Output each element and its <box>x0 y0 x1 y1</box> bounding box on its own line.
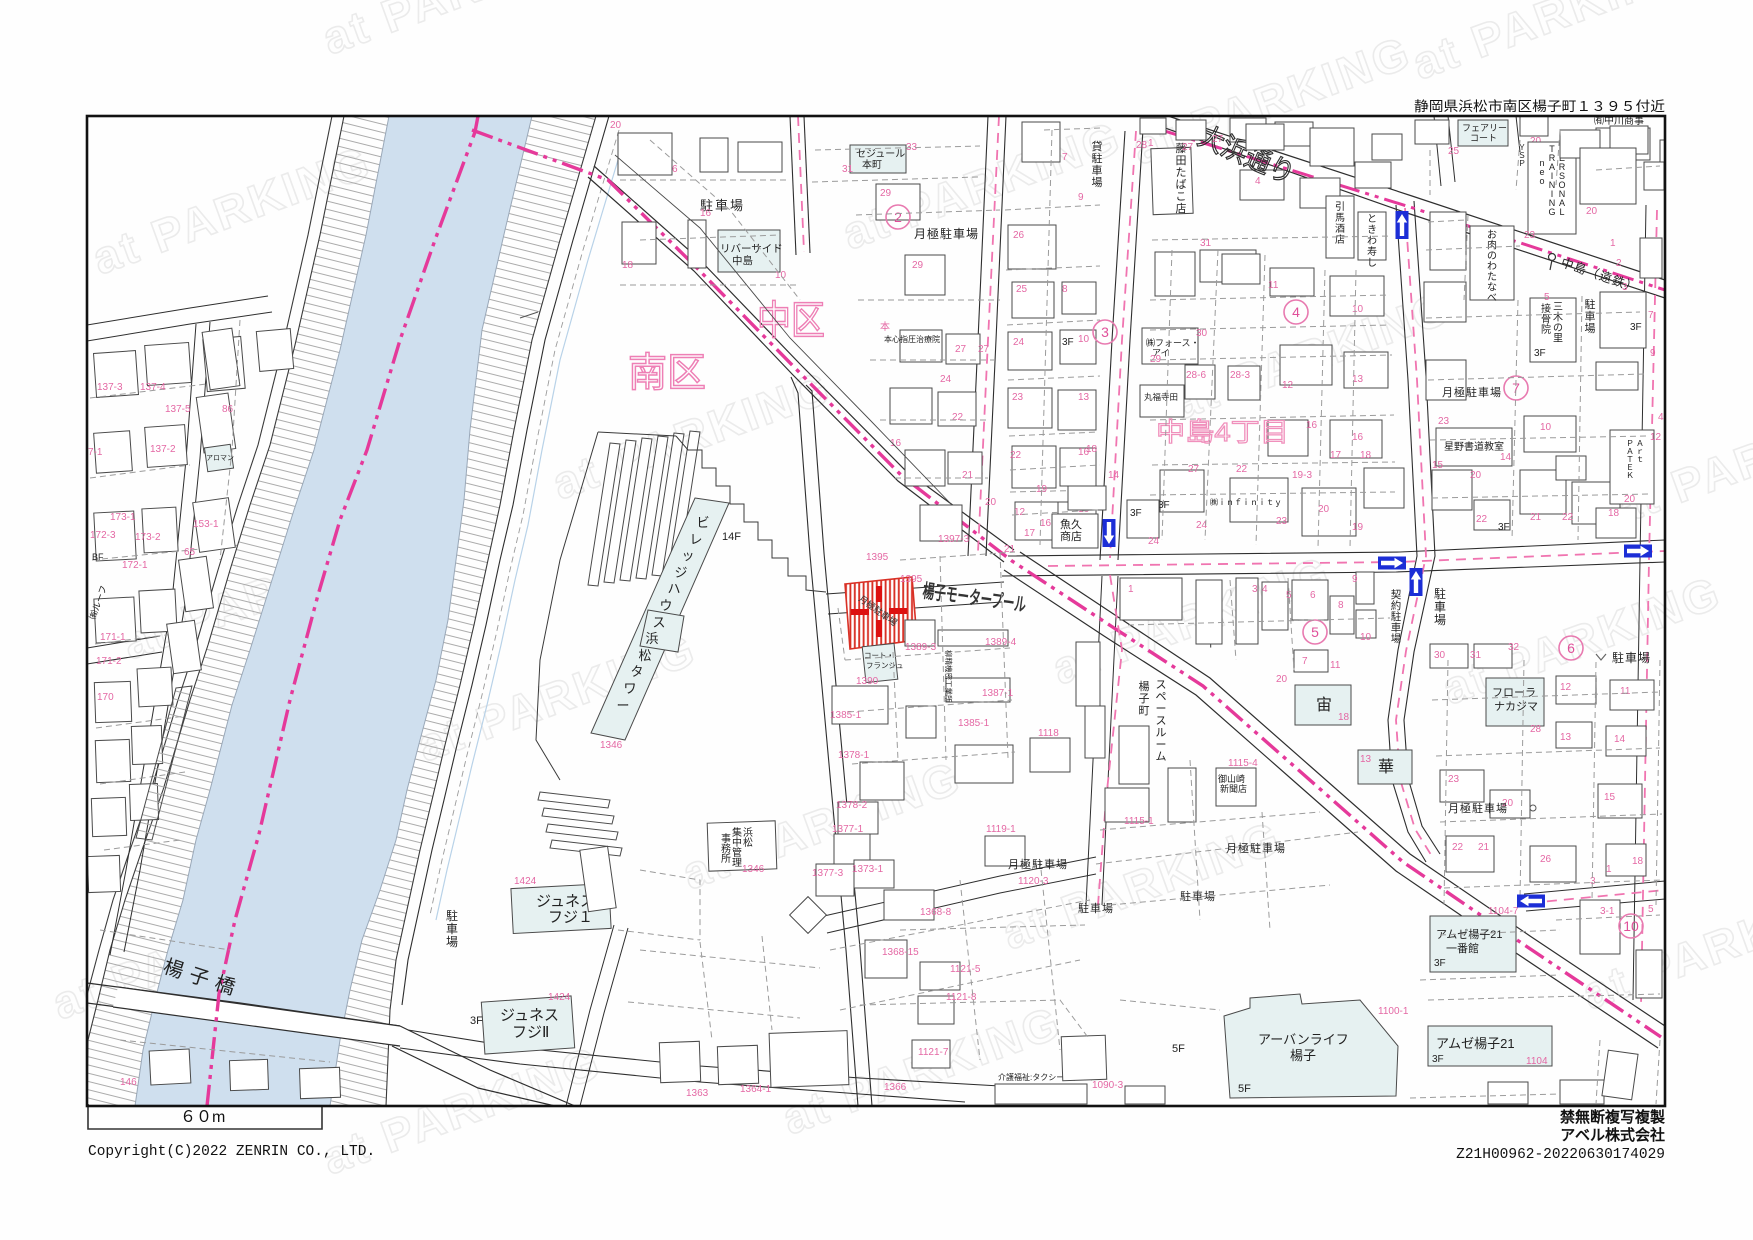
svg-text:23: 23 <box>1524 230 1536 241</box>
svg-text:20: 20 <box>1586 206 1598 217</box>
svg-text:137-5: 137-5 <box>165 404 191 415</box>
svg-text:商店: 商店 <box>1060 529 1082 543</box>
svg-text:24: 24 <box>940 374 952 385</box>
svg-text:4: 4 <box>1262 584 1268 595</box>
svg-text:1121-7: 1121-7 <box>918 1047 949 1058</box>
svg-text:引馬酒店: 引馬酒店 <box>1335 201 1345 246</box>
svg-text:3-1: 3-1 <box>1600 906 1615 917</box>
svg-text:1389-4: 1389-4 <box>985 637 1017 648</box>
svg-text:28-3: 28-3 <box>1230 370 1250 381</box>
svg-text:16: 16 <box>1306 420 1318 431</box>
svg-text:アムゼ楊子21: アムゼ楊子21 <box>1436 1036 1515 1051</box>
svg-text:6: 6 <box>1310 590 1316 601</box>
svg-text:3F: 3F <box>1534 348 1546 359</box>
svg-text:28-6: 28-6 <box>1186 370 1206 381</box>
svg-text:1368-15: 1368-15 <box>882 947 919 958</box>
svg-text:18: 18 <box>622 260 634 271</box>
svg-text:1385-1: 1385-1 <box>830 710 862 721</box>
svg-text:26: 26 <box>1013 230 1025 241</box>
svg-text:貸駐車場: 貸駐車場 <box>1092 139 1103 189</box>
svg-text:27: 27 <box>1182 142 1194 153</box>
svg-text:1121-5: 1121-5 <box>950 964 981 975</box>
svg-text:アムゼ楊子21: アムゼ楊子21 <box>1436 927 1502 941</box>
svg-text:173-1: 173-1 <box>110 512 136 523</box>
svg-text:16: 16 <box>1040 518 1052 529</box>
svg-text:22: 22 <box>1010 450 1022 461</box>
svg-text:Ａｒｔ: Ａｒｔ <box>1636 439 1644 464</box>
svg-text:5F: 5F <box>1172 1043 1185 1055</box>
svg-text:1387-1: 1387-1 <box>982 688 1014 699</box>
svg-text:3F: 3F <box>1158 500 1170 511</box>
svg-text:9: 9 <box>1650 348 1656 359</box>
svg-text:3: 3 <box>1590 876 1596 887</box>
svg-text:22: 22 <box>1562 512 1574 523</box>
svg-text:禁無断複写複製: 禁無断複写複製 <box>1560 1108 1665 1126</box>
svg-text:137-4: 137-4 <box>140 382 166 393</box>
svg-text:1395: 1395 <box>866 552 889 563</box>
svg-text:14F: 14F <box>722 531 741 543</box>
svg-text:2: 2 <box>894 209 902 225</box>
svg-text:25: 25 <box>1016 284 1028 295</box>
svg-text:14: 14 <box>1614 734 1626 745</box>
svg-text:4: 4 <box>1292 304 1300 320</box>
svg-text:1363: 1363 <box>686 1088 709 1099</box>
svg-text:駐車場: 駐車場 <box>1612 650 1651 665</box>
svg-text:20: 20 <box>610 120 622 131</box>
svg-text:宙: 宙 <box>1316 696 1332 714</box>
svg-text:8: 8 <box>1062 284 1068 295</box>
svg-text:5: 5 <box>1544 292 1550 303</box>
svg-text:本心指圧治療院: 本心指圧治療院 <box>884 334 940 344</box>
svg-text:セジュール: セジュール <box>856 148 905 160</box>
svg-text:1390: 1390 <box>856 676 879 687</box>
svg-text:9: 9 <box>1078 192 1084 203</box>
svg-text:御山崎: 御山崎 <box>1218 773 1245 784</box>
svg-text:1424: 1424 <box>548 992 571 1003</box>
svg-text:ときわ寿し: ときわ寿し <box>1367 213 1377 269</box>
svg-text:6: 6 <box>672 164 678 175</box>
svg-text:スペースルーム: スペースルーム <box>1156 679 1167 763</box>
svg-text:1385-1: 1385-1 <box>958 718 990 729</box>
svg-text:TRAINING: TRAINING <box>1548 144 1555 217</box>
svg-text:月極駐車場: 月極駐車場 <box>1008 857 1068 871</box>
svg-text:1373-1: 1373-1 <box>852 864 884 875</box>
svg-text:お肉のわたなべ: お肉のわたなべ <box>1487 229 1497 304</box>
svg-text:魚久: 魚久 <box>1060 518 1082 531</box>
svg-text:1: 1 <box>1610 238 1616 249</box>
svg-text:22: 22 <box>1452 842 1464 853</box>
svg-text:11: 11 <box>1330 660 1341 671</box>
svg-text:2: 2 <box>1616 258 1622 269</box>
svg-text:23: 23 <box>1276 516 1288 527</box>
svg-text:24: 24 <box>1013 337 1025 348</box>
svg-text:1115-1: 1115-1 <box>1124 816 1154 827</box>
svg-text:丸福寺田: 丸福寺田 <box>1144 392 1178 402</box>
svg-text:20: 20 <box>1318 504 1330 515</box>
svg-text:28: 28 <box>1136 140 1148 151</box>
svg-text:23: 23 <box>1012 392 1024 403</box>
svg-text:31: 31 <box>842 164 854 175</box>
svg-text:1366: 1366 <box>884 1082 907 1093</box>
svg-text:23: 23 <box>1448 774 1460 785</box>
svg-text:26: 26 <box>1540 854 1552 865</box>
svg-text:一番館: 一番館 <box>1446 941 1479 955</box>
svg-text:19-3: 19-3 <box>1292 470 1312 481</box>
svg-text:1: 1 <box>1148 138 1154 149</box>
svg-text:1377-3: 1377-3 <box>812 868 844 879</box>
svg-text:171-2: 171-2 <box>96 656 122 667</box>
svg-text:22: 22 <box>952 412 964 423</box>
svg-text:1104: 1104 <box>1526 1056 1548 1067</box>
svg-text:16: 16 <box>700 208 712 219</box>
svg-text:駐車場: 駐車場 <box>446 908 458 949</box>
svg-text:10: 10 <box>1623 918 1639 934</box>
svg-text:31: 31 <box>1470 650 1482 661</box>
svg-text:1395: 1395 <box>900 574 923 585</box>
svg-text:3: 3 <box>1622 282 1628 293</box>
svg-text:9: 9 <box>1352 574 1358 585</box>
svg-text:27: 27 <box>1212 134 1224 145</box>
svg-text:中区: 中区 <box>757 299 825 343</box>
svg-text:170: 170 <box>97 692 114 703</box>
svg-text:集中管理: 集中管理 <box>732 826 742 869</box>
svg-text:南区: 南区 <box>628 351 706 395</box>
svg-text:3F: 3F <box>1130 508 1142 519</box>
svg-text:18: 18 <box>1632 856 1644 867</box>
svg-text:1346: 1346 <box>600 740 623 751</box>
svg-text:7: 7 <box>1062 152 1068 163</box>
svg-text:173-2: 173-2 <box>135 532 161 543</box>
svg-text:アベル株式会社: アベル株式会社 <box>1560 1126 1665 1144</box>
svg-text:172-1: 172-1 <box>122 560 148 571</box>
svg-text:12: 12 <box>1560 682 1572 693</box>
svg-text:21: 21 <box>1530 512 1542 523</box>
svg-text:7: 7 <box>1648 310 1654 321</box>
svg-text:コート: コート <box>1470 133 1497 143</box>
svg-text:1100-1: 1100-1 <box>1378 1006 1409 1017</box>
svg-text:1104-7: 1104-7 <box>1488 906 1519 917</box>
svg-text:1378-2: 1378-2 <box>836 800 868 811</box>
svg-text:5F: 5F <box>1238 1083 1251 1095</box>
svg-text:フェアリー: フェアリー <box>1462 123 1507 133</box>
svg-text:駐車場: 駐車場 <box>1585 297 1596 335</box>
svg-text:柳精機密工業所: 柳精機密工業所 <box>944 650 954 703</box>
svg-text:20: 20 <box>1470 470 1482 481</box>
svg-text:1389-3: 1389-3 <box>905 642 937 653</box>
svg-text:1120-3: 1120-3 <box>1018 876 1049 887</box>
svg-text:3F: 3F <box>470 1015 483 1027</box>
svg-text:Copyright(C)2022 ZENRIN CO., L: Copyright(C)2022 ZENRIN CO., LTD. <box>88 1144 375 1160</box>
svg-text:3F: 3F <box>1630 322 1642 333</box>
svg-text:本町: 本町 <box>862 158 882 171</box>
svg-text:ナカジマ: ナカジマ <box>1494 700 1538 713</box>
svg-text:3F: 3F <box>1432 1054 1444 1065</box>
svg-text:1364-1: 1364-1 <box>740 1084 772 1095</box>
svg-text:17: 17 <box>1330 450 1342 461</box>
svg-text:7: 7 <box>1302 656 1308 667</box>
svg-text:146: 146 <box>120 1077 137 1088</box>
svg-text:10: 10 <box>775 270 787 281</box>
svg-text:10: 10 <box>1078 334 1090 345</box>
svg-text:10: 10 <box>1540 422 1552 433</box>
svg-text:27: 27 <box>955 344 967 355</box>
svg-text:三木の里: 三木の里 <box>1553 302 1563 345</box>
svg-text:10: 10 <box>1360 632 1372 643</box>
svg-text:静岡県浜松市南区楊子町１３９５付近: 静岡県浜松市南区楊子町１３９５付近 <box>1414 98 1666 114</box>
svg-text:3: 3 <box>1252 584 1258 595</box>
svg-text:neo: neo <box>1539 158 1544 186</box>
svg-text:6: 6 <box>1567 640 1575 656</box>
svg-text:18: 18 <box>1086 444 1098 455</box>
svg-text:リバーサイド: リバーサイド <box>720 243 783 255</box>
svg-text:フジ１: フジ１ <box>548 909 593 926</box>
svg-text:7-1: 7-1 <box>88 447 103 458</box>
svg-text:13: 13 <box>1360 754 1372 765</box>
svg-text:23: 23 <box>1438 416 1450 427</box>
svg-text:㈱フォース・: ㈱フォース・ <box>1146 337 1200 348</box>
svg-text:契約駐車場: 契約駐車場 <box>1391 588 1402 645</box>
svg-text:接骨院: 接骨院 <box>1541 302 1551 336</box>
svg-text:19: 19 <box>1036 484 1048 495</box>
svg-text:㈱ｉｎｆｉｎｉｔｙ: ㈱ｉｎｆｉｎｉｔｙ <box>1210 497 1282 507</box>
svg-text:中島: 中島 <box>732 254 753 267</box>
svg-text:32: 32 <box>1508 642 1520 653</box>
svg-text:６０m: ６０m <box>180 1109 225 1126</box>
svg-text:駐車場: 駐車場 <box>1078 901 1114 915</box>
svg-text:27: 27 <box>1188 464 1200 475</box>
svg-text:1346: 1346 <box>742 864 765 875</box>
svg-text:12: 12 <box>1282 380 1294 391</box>
svg-text:1397-3: 1397-3 <box>938 534 970 545</box>
svg-text:22: 22 <box>1476 514 1488 525</box>
svg-text:24: 24 <box>1148 536 1160 547</box>
svg-text:18: 18 <box>1608 508 1620 519</box>
svg-text:137-2: 137-2 <box>150 444 176 455</box>
svg-text:1: 1 <box>1606 864 1612 875</box>
svg-text:13: 13 <box>1560 732 1572 743</box>
svg-text:20: 20 <box>1624 494 1636 505</box>
svg-text:153-1: 153-1 <box>193 519 219 530</box>
svg-text:29: 29 <box>912 260 924 271</box>
svg-text:21: 21 <box>1478 842 1490 853</box>
svg-text:ジュネス: ジュネス <box>500 1007 559 1024</box>
svg-text:16: 16 <box>1352 432 1364 443</box>
svg-text:5: 5 <box>1648 904 1654 915</box>
svg-text:フランシュ: フランシュ <box>866 661 904 670</box>
svg-text:15: 15 <box>1432 460 1444 471</box>
svg-text:1119-1: 1119-1 <box>986 824 1016 835</box>
svg-text:Z21H00962-20220630174029: Z21H00962-20220630174029 <box>1456 1147 1665 1163</box>
svg-text:本: 本 <box>880 320 890 333</box>
svg-text:ＰＡＴＥＫ: ＰＡＴＥＫ <box>1626 439 1634 480</box>
svg-text:3F: 3F <box>1498 522 1510 533</box>
svg-text:172-3: 172-3 <box>90 530 116 541</box>
svg-text:15: 15 <box>1604 792 1616 803</box>
svg-text:21: 21 <box>1004 544 1016 555</box>
svg-text:フジⅡ: フジⅡ <box>512 1024 549 1041</box>
svg-text:21: 21 <box>962 470 974 481</box>
svg-text:月極駐車場: 月極駐車場 <box>1442 385 1502 399</box>
svg-text:30: 30 <box>1196 328 1208 339</box>
svg-text:1368-8: 1368-8 <box>920 907 952 918</box>
svg-text:14: 14 <box>1500 452 1512 463</box>
svg-text:28: 28 <box>1530 724 1542 735</box>
svg-text:14: 14 <box>1108 470 1120 481</box>
svg-text:18: 18 <box>1338 712 1350 723</box>
svg-text:65: 65 <box>184 547 196 558</box>
svg-text:月極駐車場: 月極駐車場 <box>1226 841 1286 855</box>
svg-text:1378-1: 1378-1 <box>838 750 870 761</box>
svg-text:29: 29 <box>880 188 892 199</box>
svg-text:星野書道教室: 星野書道教室 <box>1444 440 1504 453</box>
svg-text:5: 5 <box>1311 624 1319 640</box>
svg-text:11: 11 <box>1620 686 1631 697</box>
svg-text:BF: BF <box>92 552 104 562</box>
svg-text:171-1: 171-1 <box>100 632 126 643</box>
svg-text:12: 12 <box>1014 507 1026 518</box>
svg-text:86: 86 <box>222 404 234 415</box>
svg-text:8: 8 <box>1338 600 1344 611</box>
svg-text:華: 華 <box>1378 758 1394 776</box>
svg-text:楊子町: 楊子町 <box>1139 679 1150 717</box>
svg-text:31: 31 <box>1200 238 1212 249</box>
svg-text:1424: 1424 <box>514 876 537 887</box>
svg-text:18: 18 <box>1360 450 1372 461</box>
svg-text:1115-4: 1115-4 <box>1228 758 1258 769</box>
svg-text:3F: 3F <box>1062 337 1074 348</box>
svg-text:11: 11 <box>1268 280 1279 291</box>
svg-text:20: 20 <box>985 497 997 508</box>
svg-text:25: 25 <box>1448 146 1460 157</box>
svg-text:22: 22 <box>1236 464 1248 475</box>
svg-text:月極駐車場: 月極駐車場 <box>1448 801 1508 815</box>
svg-text:1: 1 <box>1128 584 1134 595</box>
svg-text:17: 17 <box>1024 528 1036 539</box>
svg-text:19: 19 <box>1352 522 1364 533</box>
svg-text:13: 13 <box>1078 392 1090 403</box>
svg-text:月極駐車場: 月極駐車場 <box>914 226 979 241</box>
svg-text:アロマン: アロマン <box>206 454 234 462</box>
svg-text:1118: 1118 <box>1038 728 1059 739</box>
svg-text:20: 20 <box>1276 674 1288 685</box>
svg-text:27: 27 <box>978 344 990 355</box>
svg-text:1377-1: 1377-1 <box>832 824 864 835</box>
svg-text:新聞店: 新聞店 <box>1220 783 1247 794</box>
svg-text:アーバンライフ: アーバンライフ <box>1258 1032 1349 1047</box>
svg-text:事務所: 事務所 <box>721 832 731 865</box>
svg-text:楊子: 楊子 <box>1290 1048 1316 1063</box>
svg-text:12: 12 <box>1650 432 1662 443</box>
svg-text:10: 10 <box>1352 304 1364 315</box>
svg-text:浜松: 浜松 <box>743 827 753 849</box>
svg-text:中島4丁目: 中島4丁目 <box>1156 417 1289 447</box>
svg-text:137-3: 137-3 <box>97 382 123 393</box>
svg-text:30: 30 <box>1434 650 1446 661</box>
svg-text:3: 3 <box>1101 324 1109 340</box>
svg-text:3F: 3F <box>1434 958 1446 969</box>
svg-text:駐車場: 駐車場 <box>1434 586 1446 627</box>
